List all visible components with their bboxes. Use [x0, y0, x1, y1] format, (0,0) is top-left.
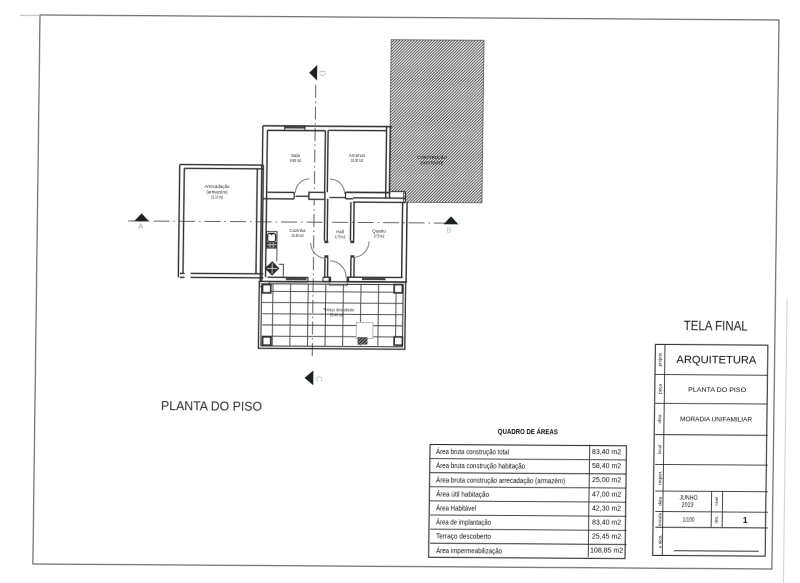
- svg-text:25,00 m2: 25,00 m2: [592, 477, 621, 484]
- svg-text:25,45 m2: 25,45 m2: [592, 534, 621, 541]
- svg-text:Área impermeabilização: Área impermeabilização: [436, 546, 502, 555]
- svg-text:Área Habitável: Área Habitável: [436, 504, 476, 513]
- svg-text:QUADRO DE ÁREAS: QUADRO DE ÁREAS: [498, 427, 558, 436]
- svg-text:requer.: requer.: [657, 471, 662, 485]
- svg-text:peça: peça: [657, 384, 662, 394]
- svg-text:projeto: projeto: [657, 352, 662, 366]
- svg-text:25,40 m2: 25,40 m2: [330, 312, 344, 317]
- svg-text:2023: 2023: [682, 501, 694, 508]
- svg-text:10.30 m2: 10.30 m2: [351, 158, 364, 163]
- svg-text:Terraço descoberto: Terraço descoberto: [436, 534, 491, 541]
- svg-text:1/100: 1/100: [683, 517, 695, 524]
- svg-text:obra: obra: [657, 414, 662, 424]
- svg-text:9.75 m2: 9.75 m2: [374, 233, 385, 238]
- svg-text:47,00 m2: 47,00 m2: [592, 491, 621, 498]
- svg-text:nível: nível: [714, 497, 719, 506]
- svg-text:108,85 m2: 108,85 m2: [590, 548, 623, 555]
- svg-text:D: D: [318, 70, 328, 76]
- svg-text:escala: escala: [657, 512, 662, 526]
- svg-text:21.10 m2: 21.10 m2: [211, 195, 223, 200]
- svg-text:MORADIA UNIFAMILIAR: MORADIA UNIFAMILIAR: [680, 416, 752, 423]
- svg-text:CONSTRUÇÃO: CONSTRUÇÃO: [417, 155, 448, 160]
- svg-text:12.40 m2: 12.40 m2: [291, 233, 304, 238]
- svg-text:9.95 m2: 9.95 m2: [290, 158, 301, 163]
- svg-text:A: A: [138, 221, 143, 230]
- svg-text:4.70 m2: 4.70 m2: [335, 234, 346, 239]
- svg-text:Área útil habitação: Área útil habitação: [436, 489, 489, 498]
- svg-text:58,40 m2: 58,40 m2: [592, 463, 621, 470]
- svg-text:PLANTA DO PISO: PLANTA DO PISO: [161, 398, 262, 414]
- svg-text:local: local: [657, 445, 662, 454]
- svg-text:data: data: [657, 496, 662, 505]
- svg-text:C: C: [314, 376, 323, 382]
- svg-text:42,30 m2: 42,30 m2: [592, 505, 621, 512]
- svg-text:Área de implantação: Área de implantação: [436, 518, 491, 527]
- svg-text:1: 1: [743, 515, 748, 525]
- svg-text:o técn.: o técn.: [657, 535, 662, 549]
- svg-text:B: B: [446, 225, 451, 234]
- svg-text:des.: des.: [714, 516, 719, 524]
- svg-text:EXISTENTE: EXISTENTE: [420, 160, 444, 165]
- svg-text:83,40 m2: 83,40 m2: [592, 520, 621, 527]
- svg-text:PLANTA DO PISO: PLANTA DO PISO: [688, 387, 746, 394]
- svg-text:83,40 m2: 83,40 m2: [592, 449, 621, 456]
- svg-text:ARQUITETURA: ARQUITETURA: [676, 354, 757, 367]
- svg-text:TELA FINAL: TELA FINAL: [684, 318, 749, 333]
